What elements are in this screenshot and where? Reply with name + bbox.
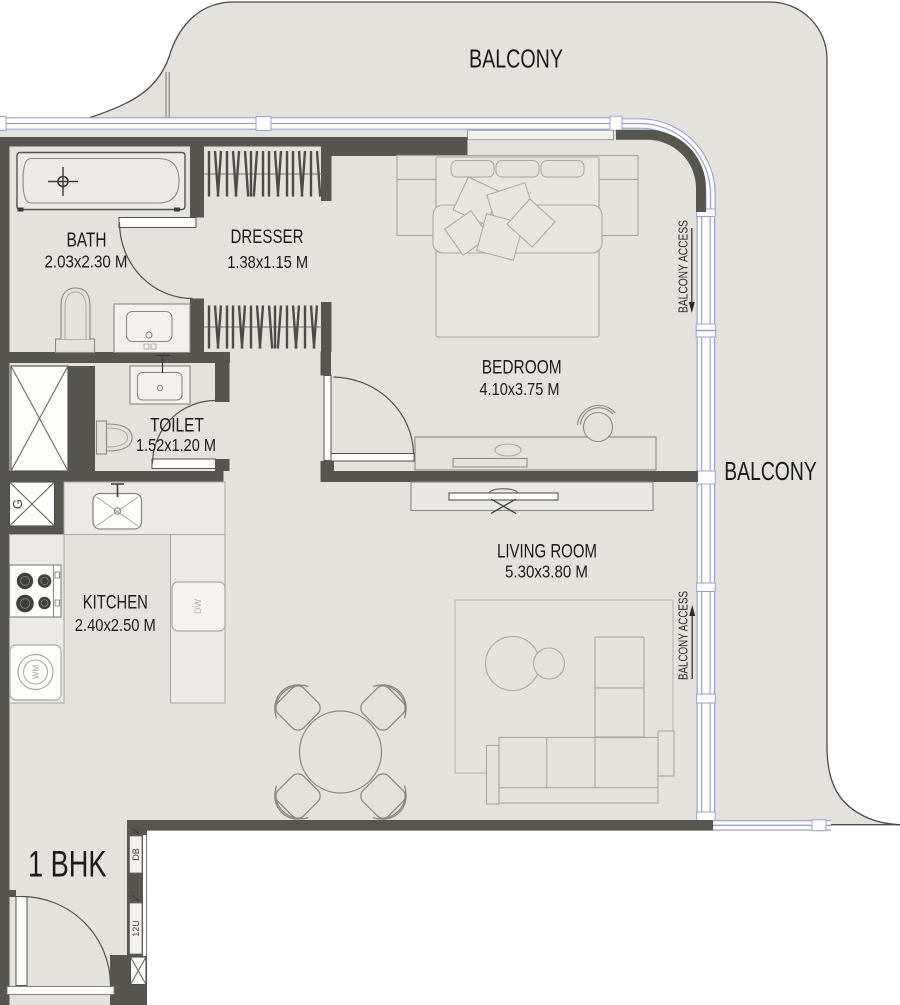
svg-text:12U: 12U	[131, 920, 141, 937]
svg-text:1.52x1.20 M: 1.52x1.20 M	[136, 435, 216, 455]
svg-text:4.10x3.75 M: 4.10x3.75 M	[480, 379, 560, 399]
svg-text:WM: WM	[32, 665, 41, 680]
svg-text:DW: DW	[193, 599, 203, 614]
svg-text:1.38x1.15 M: 1.38x1.15 M	[227, 252, 308, 272]
svg-text:2.40x2.50 M: 2.40x2.50 M	[75, 615, 156, 635]
svg-text:G: G	[10, 499, 25, 509]
svg-text:BALCONY: BALCONY	[469, 44, 563, 74]
svg-text:BALCONY: BALCONY	[724, 458, 817, 486]
svg-text:1 BHK: 1 BHK	[28, 844, 107, 885]
svg-text:BATH: BATH	[67, 230, 107, 252]
svg-text:BALCONY ACCESS: BALCONY ACCESS	[677, 220, 691, 313]
svg-text:DB: DB	[131, 848, 141, 861]
svg-text:TOILET: TOILET	[150, 416, 204, 437]
svg-text:5.30x3.80 M: 5.30x3.80 M	[505, 562, 588, 582]
svg-text:2.03x2.30 M: 2.03x2.30 M	[45, 252, 128, 272]
svg-text:KITCHEN: KITCHEN	[83, 593, 148, 614]
svg-text:BALCONY ACCESS: BALCONY ACCESS	[677, 591, 691, 680]
svg-text:DRESSER: DRESSER	[231, 227, 304, 248]
svg-text:LIVING ROOM: LIVING ROOM	[497, 542, 597, 563]
svg-text:BEDROOM: BEDROOM	[482, 358, 562, 379]
